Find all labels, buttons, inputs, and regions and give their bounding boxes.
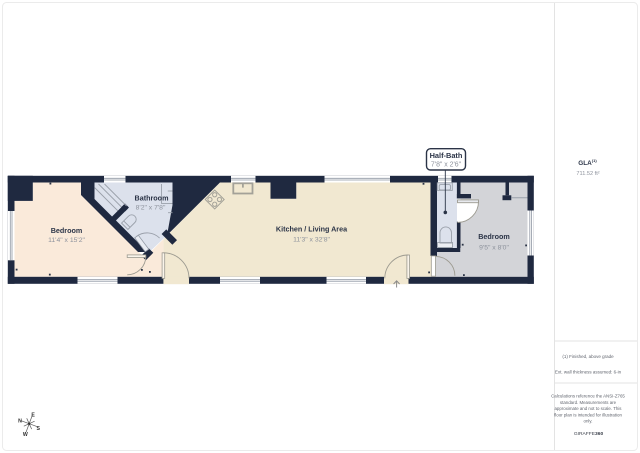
svg-text:E: E [31, 412, 35, 418]
svg-text:7'8" x 2'6": 7'8" x 2'6" [431, 162, 462, 169]
svg-text:9'5" x 8'0": 9'5" x 8'0" [479, 244, 509, 251]
svg-text:Kitchen / Living Area: Kitchen / Living Area [276, 224, 348, 233]
svg-text:Calculations reference the ANS: Calculations reference the ANSI-Z765 [551, 394, 625, 399]
svg-text:standard. Measurements are: standard. Measurements are [560, 400, 617, 405]
svg-text:Half-Bath: Half-Bath [430, 151, 463, 160]
svg-text:11'3" x 32'8": 11'3" x 32'8" [293, 237, 330, 244]
svg-text:W: W [23, 432, 28, 438]
svg-text:S: S [36, 426, 40, 432]
svg-text:approximate and not to scale.: approximate and not to scale. This [554, 406, 622, 411]
svg-text:711.52 ft²: 711.52 ft² [576, 171, 599, 177]
svg-text:floor plan is intended for ill: floor plan is intended for illustration [554, 412, 622, 417]
svg-text:Ext. wall thickness assumed: 6: Ext. wall thickness assumed: 6-in [555, 369, 622, 374]
svg-text:8'2" x 7'8": 8'2" x 7'8" [136, 205, 166, 212]
svg-text:(1) Finished, above grade: (1) Finished, above grade [562, 354, 614, 359]
svg-text:Bathroom: Bathroom [135, 193, 169, 202]
svg-text:GIRAFFE360: GIRAFFE360 [574, 431, 604, 437]
svg-text:Bedroom: Bedroom [51, 226, 83, 235]
svg-text:only.: only. [584, 419, 593, 424]
svg-text:Bedroom: Bedroom [478, 232, 510, 241]
svg-text:N: N [18, 418, 22, 424]
svg-text:11'4" x 15'2": 11'4" x 15'2" [48, 237, 85, 244]
